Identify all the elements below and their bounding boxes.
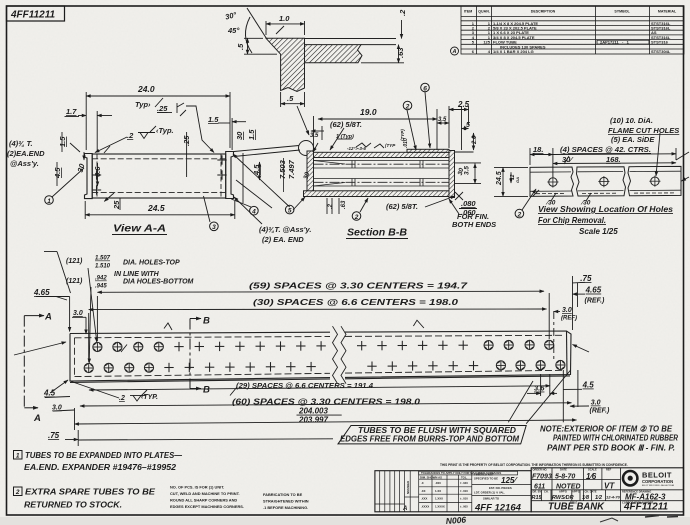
svg-text:FABRICATION TO BE: FABRICATION TO BE — [263, 492, 303, 497]
svg-text:7.497: 7.497 — [287, 159, 296, 179]
svg-text:EDGES EXCEPT MACHINED CORNERS.: EDGES EXCEPT MACHINED CORNERS. — [170, 504, 244, 509]
svg-text:.5: .5 — [236, 43, 245, 50]
svg-text:1 (Typ): 1 (Typ) — [336, 134, 354, 140]
svg-text:DIA. HOLES-TOP: DIA. HOLES-TOP — [123, 260, 180, 267]
svg-text:7.503: 7.503 — [278, 159, 287, 179]
svg-text:.XXX: .XXX — [421, 497, 428, 501]
svg-text:STST304L: STST304L — [651, 49, 671, 54]
svg-text:PAINT PER STD BOOK Ⅲ - FIN. P.: PAINT PER STD BOOK Ⅲ - FIN. P. — [547, 444, 675, 453]
svg-text:1.510: 1.510 — [95, 264, 111, 270]
svg-text:(121): (121) — [66, 258, 83, 265]
svg-text:.X: .X — [421, 481, 424, 485]
svg-text:(4)¾ T.: (4)¾ T. — [9, 139, 33, 148]
svg-text:A: A — [402, 506, 407, 512]
svg-text:(5) EA. SiDE: (5) EA. SiDE — [611, 135, 655, 144]
svg-text:NOTE:EXTERIOR OF ITEM ② TO BE: NOTE:EXTERIOR OF ITEM ② TO BE — [540, 425, 673, 434]
svg-text:Typ›: Typ› — [135, 100, 151, 109]
svg-text:View A-A: View A-A — [113, 224, 166, 235]
svg-text:18.: 18. — [533, 145, 543, 154]
svg-text:BELOIT WISCONSIN • DALLAS TEXA: BELOIT WISCONSIN • DALLAS TEXAS — [642, 484, 675, 487]
svg-text:4.5: 4.5 — [43, 389, 56, 398]
svg-text:FLAME CUT HOLES: FLAME CUT HOLES — [608, 126, 679, 135]
svg-text:24.5: 24.5 — [147, 203, 165, 213]
svg-text:.5: .5 — [287, 94, 294, 103]
svg-text:2: 2 — [405, 103, 410, 110]
svg-text:‹Typ.: ‹Typ. — [156, 126, 174, 135]
svg-text:1.7: 1.7 — [66, 107, 77, 116]
svg-text:1: 1 — [47, 198, 51, 205]
svg-text:DATE: DATE — [560, 468, 567, 472]
svg-text:DESCRIPTION: DESCRIPTION — [531, 10, 556, 14]
svg-text:F7093: F7093 — [532, 474, 552, 481]
svg-text:THIS PRINT IS THE PROPERTY OF: THIS PRINT IS THE PROPERTY OF BELOIT COR… — [440, 463, 628, 467]
svg-text:3.5: 3.5 — [310, 133, 319, 139]
svg-text:12-4-70: 12-4-70 — [606, 495, 621, 500]
svg-text:SIMILAR TO: SIMILAR TO — [483, 497, 500, 501]
svg-text:NUMBER: NUMBER — [406, 480, 410, 494]
svg-text:REF: REF — [606, 468, 612, 472]
svg-text:2.0: 2.0 — [472, 135, 478, 145]
svg-text:24.0: 24.0 — [137, 84, 155, 94]
svg-text:EXTRA SPARE TUBES TO BE: EXTRA SPARE TUBES TO BE — [25, 488, 156, 497]
svg-text:1.XX: 1.XX — [435, 489, 441, 493]
svg-text:25: 25 — [112, 200, 121, 210]
svg-text:.X00: .X00 — [435, 481, 441, 485]
svg-text:.63: .63 — [341, 200, 347, 209]
svg-text:PAINTED WITH CHLORINATED RUBBE: PAINTED WITH CHLORINATED RUBBER — [553, 434, 678, 443]
svg-text:.2: .2 — [119, 395, 125, 402]
svg-text:1.XXXX: 1.XXXX — [435, 505, 445, 509]
svg-text:ITEM: ITEM — [464, 10, 473, 14]
svg-text:‹TYP.: ‹TYP. — [141, 394, 158, 401]
svg-text:(121): (121) — [66, 278, 83, 285]
svg-text:TUBE BANK: TUBE BANK — [548, 501, 605, 513]
svg-text:(59) SPACES @ 3.30 CENTERS = 1: (59) SPACES @ 3.30 CENTERS = 194.7 — [249, 281, 468, 290]
svg-text:3.0: 3.0 — [73, 310, 83, 317]
svg-text:1: 1 — [16, 453, 20, 460]
svg-text:A: A — [452, 49, 457, 55]
svg-text:(29) SPACES @ 6.6 CENTERS = 19: (29) SPACES @ 6.6 CENTERS = 191.4 — [236, 383, 373, 390]
svg-text:R15: R15 — [532, 495, 543, 501]
svg-text:4.5: 4.5 — [582, 381, 595, 390]
svg-text:(4) SPACES @ 42. CTRS.: (4) SPACES @ 42. CTRS. — [560, 145, 651, 154]
svg-text:.5: .5 — [464, 122, 470, 129]
svg-text:1.5: 1.5 — [208, 115, 219, 124]
svg-text:4FF11211: 4FF11211 — [623, 502, 669, 513]
svg-text:DIM. SHOWN AS: DIM. SHOWN AS — [420, 475, 442, 479]
svg-text:6: 6 — [423, 85, 427, 92]
svg-text:.080: .080 — [461, 199, 476, 208]
svg-text:4FF11211: 4FF11211 — [10, 10, 56, 21]
svg-text:3.6: 3.6 — [534, 384, 545, 393]
svg-text:MATERIAL: MATERIAL — [658, 10, 677, 14]
svg-text:1.5: 1.5 — [58, 136, 67, 147]
svg-text:.25: .25 — [157, 104, 168, 113]
svg-text:NO. OF PCS. IS FOR (1) UNIT.: NO. OF PCS. IS FOR (1) UNIT. — [170, 485, 224, 490]
svg-text:30: 30 — [235, 131, 244, 140]
svg-text:± .040: ± .040 — [460, 481, 468, 485]
svg-text:± .010: ± .010 — [460, 489, 468, 493]
svg-text:2.5: 2.5 — [457, 100, 470, 109]
svg-text:(30) SPACES @ 6.6 CENTERS = 19: (30) SPACES @ 6.6 CENTERS = 198.0 — [253, 298, 459, 307]
svg-text:A: A — [44, 312, 52, 323]
svg-text:VT: VT — [604, 482, 615, 491]
svg-text:N006: N006 — [445, 515, 466, 525]
svg-text:(62) 5/8T.: (62) 5/8T. — [330, 120, 362, 129]
svg-text:(TYP: (TYP — [385, 143, 396, 148]
svg-text:3: 3 — [212, 224, 216, 231]
svg-text:5: 5 — [288, 207, 292, 214]
svg-text:24.5: 24.5 — [496, 171, 503, 186]
svg-text:.25: .25 — [182, 135, 191, 146]
svg-text:CORPORATION: CORPORATION — [642, 479, 673, 484]
svg-text:.945: .945 — [95, 284, 107, 290]
svg-text:1.XXX: 1.XXX — [435, 497, 443, 501]
svg-text:3.0: 3.0 — [562, 307, 572, 314]
svg-text:6.6: 6.6 — [93, 166, 102, 177]
svg-text:3.0: 3.0 — [52, 405, 62, 412]
svg-text:(REF.): (REF.) — [585, 298, 606, 305]
svg-text:5-8-70: 5-8-70 — [555, 474, 575, 481]
svg-text:125: 125 — [483, 40, 490, 45]
svg-text:B: B — [203, 316, 210, 327]
svg-text:NOTED: NOTED — [556, 484, 581, 491]
svg-text:45°: 45° — [227, 26, 240, 35]
svg-text:1.5: 1.5 — [247, 129, 256, 140]
svg-text:3.0: 3.0 — [591, 400, 601, 407]
svg-text:(REF.): (REF.) — [590, 408, 611, 415]
svg-text:(10) 10. DiA.: (10) 10. DiA. — [610, 116, 653, 125]
svg-text:(REF): (REF) — [561, 316, 577, 322]
svg-text:4.65: 4.65 — [33, 288, 50, 297]
svg-text:± .010: ± .010 — [460, 497, 468, 501]
svg-text:1.0: 1.0 — [279, 14, 290, 23]
svg-text:ORDER NO.: ORDER NO. — [533, 468, 548, 472]
svg-text:SYMBOL: SYMBOL — [614, 10, 630, 14]
svg-text:-12°>-3-6: -12°>-3-6 — [347, 146, 366, 151]
svg-text:(4)¾T. @Ass'y.: (4)¾T. @Ass'y. — [259, 225, 311, 234]
svg-text:EDGES FREE FROM BURRS-TOP AND: EDGES FREE FROM BURRS-TOP AND BOTTOM — [340, 435, 519, 444]
svg-text:TUBES TO BE EXPANDED INTO PLAT: TUBES TO BE EXPANDED INTO PLATES— — [25, 451, 183, 460]
svg-text:QUAN.: QUAN. — [478, 10, 490, 14]
svg-text:1⁄6: 1⁄6 — [586, 472, 597, 481]
svg-text:.75: .75 — [580, 274, 592, 283]
svg-text:DIA HOLES-BOTTOM: DIA HOLES-BOTTOM — [123, 279, 194, 286]
svg-text:3.5: 3.5 — [464, 166, 471, 175]
svg-text:203.997: 203.997 — [298, 416, 328, 425]
svg-text:RETURNED TO STOCK.: RETURNED TO STOCK. — [24, 501, 122, 510]
svg-text:611: 611 — [534, 484, 545, 491]
svg-text:.2: .2 — [328, 203, 334, 209]
svg-text:(62) 5/8T.: (62) 5/8T. — [386, 202, 418, 211]
svg-text:2: 2 — [354, 214, 359, 221]
svg-text:2: 2 — [15, 489, 20, 496]
svg-text:IN LINE WITH: IN LINE WITH — [114, 271, 160, 278]
svg-text:A: A — [33, 413, 41, 424]
svg-text:Section B-B: Section B-B — [347, 228, 407, 239]
svg-text:EA.END. EXPANDER #19476–#1995: EA.END. EXPANDER #19476–#19952 — [24, 463, 177, 472]
svg-text:(2) EA. END: (2) EA. END — [262, 235, 304, 244]
svg-text:2AP17211 - 1: 2AP17211 - 1 — [600, 40, 630, 45]
svg-text:B: B — [203, 385, 210, 396]
svg-text:EST. NO. PIECES: EST. NO. PIECES — [489, 486, 512, 490]
svg-text:BOTH ENDS: BOTH ENDS — [452, 220, 496, 229]
svg-text:.942: .942 — [95, 276, 107, 282]
svg-text:4.5: 4.5 — [53, 167, 62, 179]
svg-text:4FF 12164: 4FF 12164 — [474, 503, 522, 514]
svg-text:@Ass'y.: @Ass'y. — [10, 159, 39, 168]
svg-text:168.: 168. — [606, 155, 621, 164]
svg-text:LDT. ORDER (1) ½ VAL.: LDT. ORDER (1) ½ VAL. — [474, 491, 505, 495]
svg-text:.63: .63 — [396, 47, 405, 58]
svg-text:Scale 1/25: Scale 1/25 — [579, 227, 618, 236]
svg-text:.2: .2 — [398, 9, 407, 16]
svg-text:.75: .75 — [48, 431, 60, 440]
svg-text:GA: GA — [515, 177, 520, 183]
svg-text:2: 2 — [517, 211, 522, 218]
svg-text:.XX: .XX — [421, 489, 426, 493]
svg-text:.XXXX: .XXXX — [421, 505, 429, 509]
svg-text:For Chip Removal.: For Chip Removal. — [538, 215, 606, 225]
svg-text:1/4 X 1 BAR X 204 LG: 1/4 X 1 BAR X 204 LG — [493, 49, 534, 54]
svg-text:± .005: ± .005 — [460, 505, 468, 509]
svg-text:1.507: 1.507 — [95, 256, 111, 262]
svg-text:CUT, WELD AND MACHINE TO PRINT: CUT, WELD AND MACHINE TO PRINT. — [170, 491, 240, 496]
svg-text:19.0: 19.0 — [360, 107, 377, 117]
svg-text:4.65: 4.65 — [585, 286, 602, 295]
svg-text:STST316: STST316 — [651, 40, 669, 45]
svg-text:STRAIGHTENED WITHIN: STRAIGHTENED WITHIN — [263, 499, 309, 504]
svg-text:CH. DATE: CH. DATE — [585, 490, 597, 494]
svg-text:3.5: 3.5 — [438, 117, 447, 123]
svg-text:ROUND ALL SHARP CORNERS AND: ROUND ALL SHARP CORNERS AND — [170, 498, 237, 503]
svg-text:204.003: 204.003 — [298, 407, 328, 416]
svg-text:MF-A162-3: MF-A162-3 — [625, 493, 666, 502]
svg-text:.1 BEFORE MACHINING.: .1 BEFORE MACHINING. — [263, 505, 308, 510]
svg-text:View Showing Location Of Holes: View Showing Location Of Holes — [538, 204, 673, 214]
svg-text:SPECIFIED TO BE: SPECIFIED TO BE — [474, 477, 498, 481]
svg-text:(TYP): (TYP) — [400, 129, 405, 141]
svg-text:(2)EA.END: (2)EA.END — [7, 149, 45, 158]
svg-text:TOL.: TOL. — [461, 475, 468, 479]
svg-text:(60) SPACES @ 3.30 CENTERS = 1: (60) SPACES @ 3.30 CENTERS = 198.0 — [232, 397, 421, 406]
svg-text:.2: .2 — [127, 131, 134, 140]
